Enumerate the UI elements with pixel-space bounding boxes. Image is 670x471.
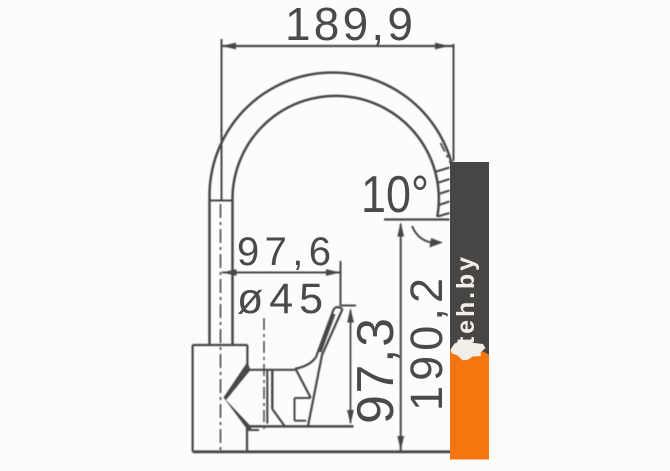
svg-text:97,3: 97,3 [347, 318, 405, 424]
svg-text:190,2: 190,2 [401, 278, 452, 411]
svg-text:ø45: ø45 [237, 275, 323, 323]
svg-text:10°: 10° [361, 166, 429, 224]
svg-text:189,9: 189,9 [285, 0, 413, 50]
svg-text:97,6: 97,6 [237, 230, 331, 274]
